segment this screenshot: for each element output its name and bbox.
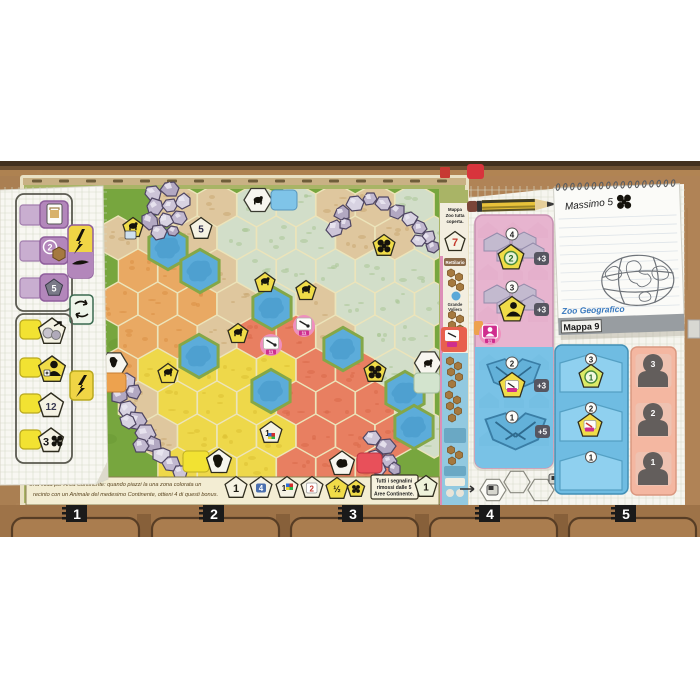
svg-text:4: 4	[510, 231, 515, 240]
svg-text:+3: +3	[537, 382, 547, 391]
svg-text:1: 1	[589, 454, 594, 463]
svg-text:1: 1	[73, 506, 81, 522]
svg-text:+3: +3	[537, 255, 547, 264]
svg-text:1: 1	[423, 483, 429, 494]
svg-text:2: 2	[651, 408, 656, 418]
svg-text:4: 4	[486, 506, 494, 522]
svg-text:Zoo tutta: Zoo tutta	[446, 213, 465, 218]
svg-text:3: 3	[43, 437, 49, 449]
svg-text:3: 3	[651, 359, 656, 369]
svg-text:+3: +3	[537, 306, 547, 315]
svg-text:12: 12	[45, 402, 57, 413]
svg-text:Mappa 9: Mappa 9	[563, 321, 599, 332]
svg-text:Tutti i segnalini: Tutti i segnalini	[376, 479, 413, 485]
svg-text:+5: +5	[538, 428, 548, 437]
svg-text:3: 3	[349, 506, 357, 522]
svg-text:2: 2	[210, 506, 218, 522]
svg-text:Mappa: Mappa	[448, 207, 462, 212]
svg-text:3: 3	[589, 356, 594, 365]
svg-text:2: 2	[508, 254, 513, 264]
svg-text:2: 2	[47, 243, 52, 253]
svg-text:recinto con un Animale del med: recinto con un Animale del medesimo Cont…	[33, 492, 218, 498]
svg-text:Rettilario: Rettilario	[445, 260, 464, 265]
svg-text:7: 7	[452, 237, 458, 249]
svg-text:1: 1	[510, 414, 515, 423]
svg-text:11: 11	[488, 338, 493, 343]
svg-text:Aree Continente.: Aree Continente.	[374, 492, 415, 498]
svg-text:5: 5	[198, 225, 204, 236]
svg-text:2: 2	[589, 405, 594, 414]
svg-text:5: 5	[622, 506, 630, 522]
svg-text:11: 11	[302, 331, 307, 336]
svg-text:1: 1	[589, 374, 594, 383]
svg-text:11: 11	[269, 350, 274, 355]
svg-text:Voliera: Voliera	[448, 307, 462, 312]
svg-text:2: 2	[510, 360, 515, 369]
svg-text:½: ½	[333, 484, 341, 494]
svg-text:1: 1	[233, 483, 239, 495]
svg-text:2: 2	[309, 484, 314, 493]
svg-text:4: 4	[259, 484, 264, 493]
svg-text:1: 1	[651, 457, 656, 467]
svg-text:coperta.: coperta.	[446, 219, 463, 224]
svg-text:3: 3	[510, 284, 515, 293]
svg-text:5: 5	[51, 284, 56, 294]
svg-text:rimossi dalle 5: rimossi dalle 5	[377, 485, 412, 491]
